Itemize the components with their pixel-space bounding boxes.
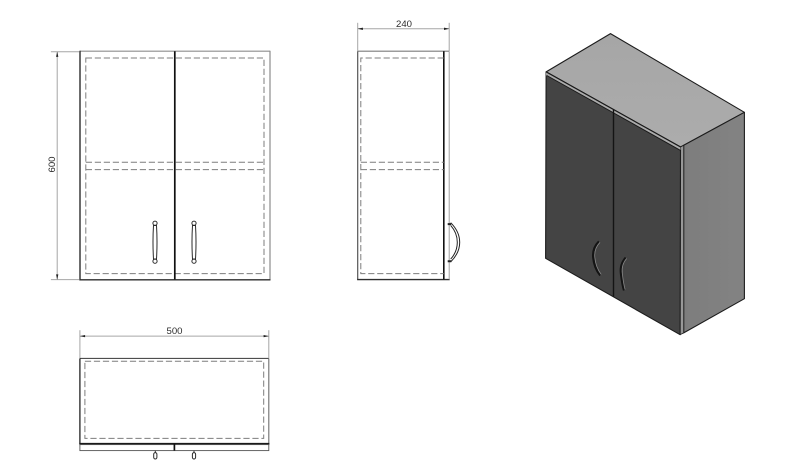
- svg-text:600: 600: [47, 156, 58, 172]
- svg-text:240: 240: [396, 19, 412, 30]
- svg-text:500: 500: [166, 326, 182, 337]
